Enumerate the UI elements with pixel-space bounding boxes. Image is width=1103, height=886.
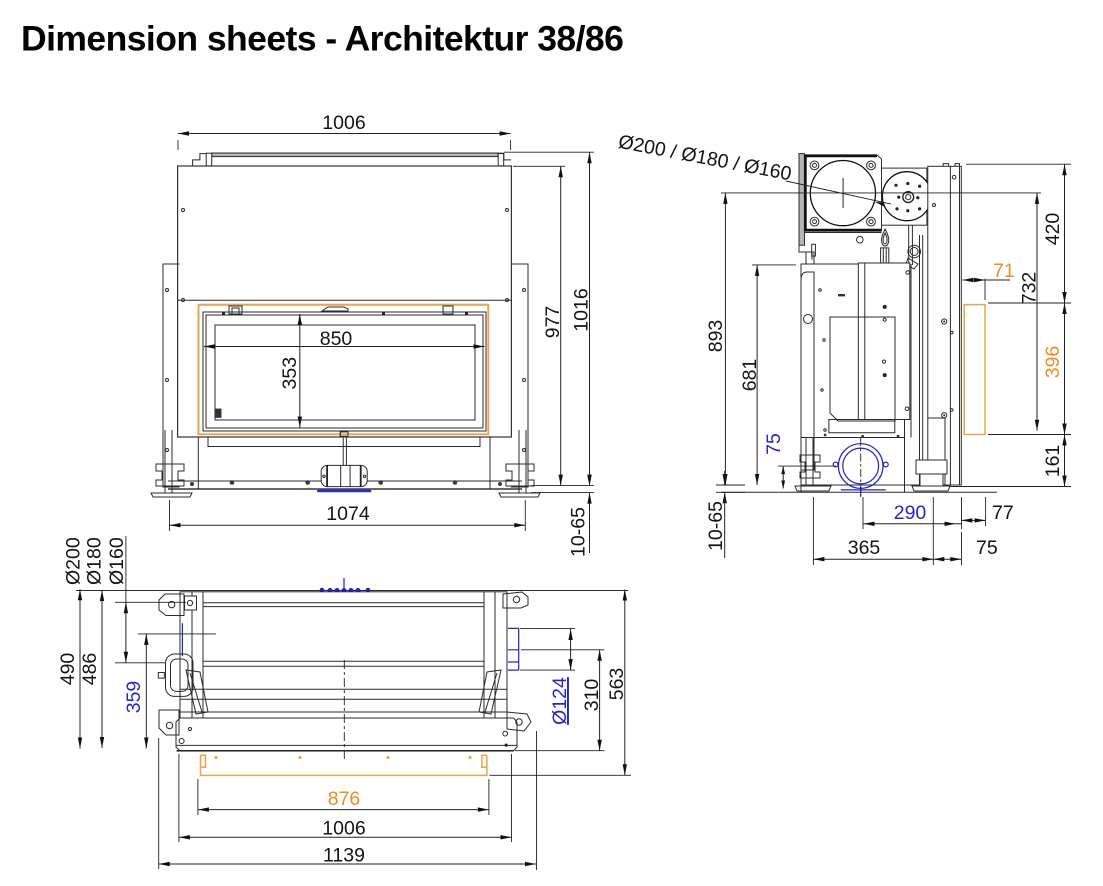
svg-text:977: 977	[542, 306, 564, 339]
svg-text:Dimension sheets - Architektur: Dimension sheets - Architektur 38/86	[21, 19, 623, 59]
svg-text:850: 850	[320, 328, 353, 350]
svg-text:1006: 1006	[322, 818, 365, 840]
svg-text:Ø180: Ø180	[84, 537, 106, 585]
svg-text:353: 353	[279, 357, 301, 390]
svg-text:10-65: 10-65	[705, 501, 727, 551]
svg-text:Ø160: Ø160	[106, 537, 128, 585]
svg-text:486: 486	[79, 653, 101, 686]
svg-text:77: 77	[992, 502, 1014, 524]
svg-text:1139: 1139	[323, 845, 365, 867]
svg-text:10-65: 10-65	[568, 507, 590, 557]
svg-text:563: 563	[606, 668, 628, 701]
svg-text:876: 876	[328, 788, 361, 810]
svg-text:681: 681	[739, 359, 761, 392]
svg-text:1016: 1016	[571, 288, 593, 331]
svg-text:359: 359	[123, 681, 145, 714]
svg-text:Ø124: Ø124	[549, 677, 571, 725]
svg-text:1006: 1006	[322, 112, 365, 134]
svg-text:75: 75	[976, 537, 998, 559]
svg-text:420: 420	[1042, 213, 1064, 246]
svg-text:71: 71	[993, 260, 1015, 282]
svg-text:1074: 1074	[326, 503, 370, 525]
svg-text:490: 490	[57, 653, 79, 686]
svg-text:396: 396	[1042, 346, 1064, 379]
svg-text:893: 893	[705, 320, 727, 353]
svg-text:310: 310	[581, 679, 603, 712]
svg-text:Ø200: Ø200	[62, 537, 84, 585]
svg-text:365: 365	[848, 537, 881, 559]
svg-text:290: 290	[894, 502, 927, 524]
svg-text:75: 75	[763, 433, 785, 455]
svg-text:161: 161	[1042, 445, 1064, 478]
svg-text:732: 732	[1019, 272, 1041, 305]
